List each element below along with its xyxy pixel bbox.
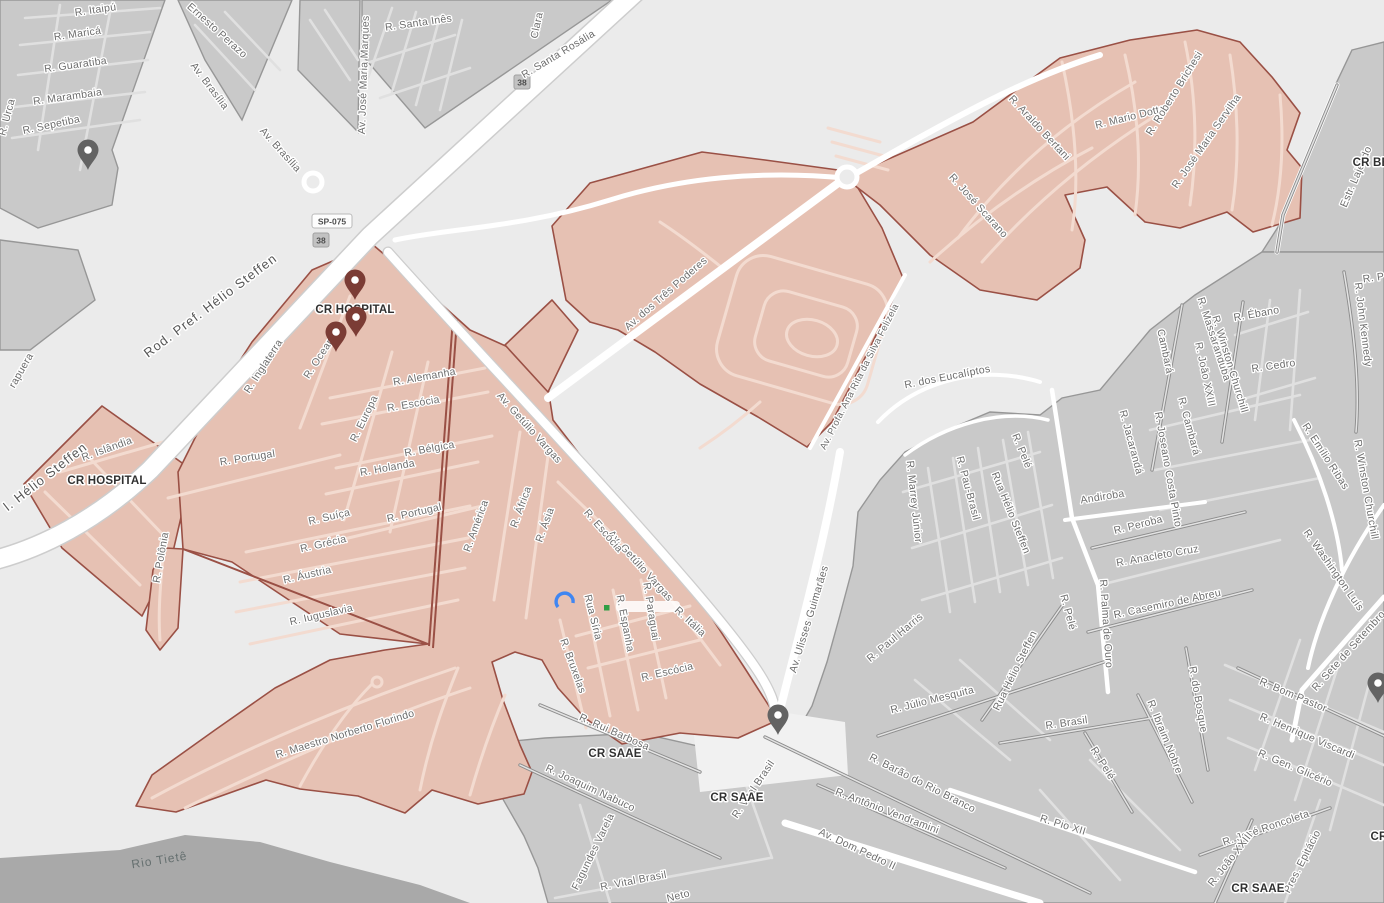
shield-sp075: SP-075: [312, 214, 352, 228]
place-label-cr-saae[interactable]: CR SAAE: [710, 792, 763, 804]
map-canvas[interactable]: SP-075 38 38 R. Itaipú R. Maricá R. Guar…: [0, 0, 1384, 903]
place-label-cr-hospital[interactable]: CR HOSPITAL: [67, 475, 146, 487]
shield-sp075-text: SP-075: [318, 217, 347, 227]
poi-green-icon[interactable]: [604, 605, 610, 611]
place-label-cr-be[interactable]: CR BE: [1353, 157, 1384, 169]
place-label-cr-saae[interactable]: CR SAAE: [1231, 883, 1284, 895]
shield-38-a: 38: [313, 233, 329, 247]
place-label-cr[interactable]: CR: [1370, 831, 1384, 843]
shield-38-text: 38: [316, 236, 326, 246]
place-label-cr-saae[interactable]: CR SAAE: [588, 748, 641, 760]
